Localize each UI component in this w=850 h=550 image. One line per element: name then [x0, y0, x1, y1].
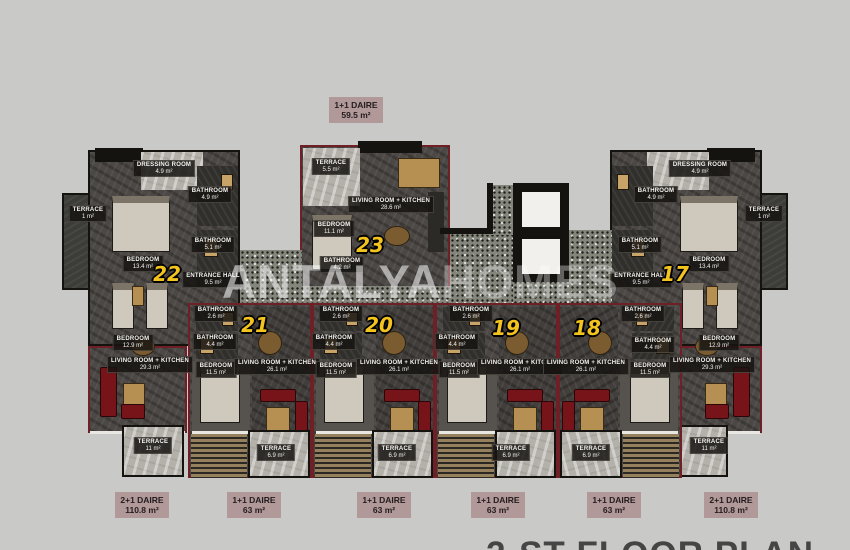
watermark: ANTALYAHOMES — [222, 254, 619, 309]
unit-type-label: 2+1 DAIRE110.8 m² — [115, 492, 169, 518]
room-label: LIVING ROOM + KITCHEN29.3 m² — [669, 356, 755, 373]
wood-balcony — [438, 434, 494, 478]
room-label: TERRACE1 m² — [745, 205, 783, 222]
room-label: BATHROOM4.9 m² — [188, 186, 232, 203]
floor-plan-title: 2-ST FLOOR PLAN — [486, 535, 814, 550]
sofa — [418, 401, 431, 431]
elevator — [519, 189, 563, 230]
coffee-table — [580, 407, 604, 431]
unit-number-badge: 17 — [661, 262, 689, 286]
sofa — [384, 389, 420, 402]
room-label: BATHROOM4.9 m² — [634, 186, 678, 203]
dresser — [706, 286, 718, 306]
room-label: TERRACE1 m² — [69, 205, 107, 222]
room-label: BATHROOM5.1 m² — [618, 236, 662, 253]
room-label: TERRACE5.5 m² — [312, 158, 350, 175]
unit-type-label: 2+1 DAIRE110.8 m² — [704, 492, 758, 518]
wall-segment — [487, 183, 493, 233]
room-label: TERRACE6.9 m² — [492, 444, 530, 461]
room-label: DRESSING ROOM4.9 m² — [669, 160, 731, 177]
coffee-table — [266, 407, 290, 431]
room-label: BEDROOM11.1 m² — [314, 220, 355, 237]
wood-balcony — [623, 434, 679, 478]
bed — [112, 283, 134, 329]
room-label: TERRACE11 m² — [690, 437, 728, 454]
room-label: LIVING ROOM + KITCHEN26.1 m² — [234, 358, 320, 375]
sofa — [705, 404, 729, 419]
room-label: LIVING ROOM + KITCHEN28.6 m² — [348, 196, 434, 213]
unit-type-label-top: 1+1 DAIRE59.5 m² — [329, 97, 383, 123]
unit-number-badge: 22 — [153, 262, 181, 286]
unit-number-badge: 18 — [573, 316, 601, 340]
sofa — [733, 367, 750, 417]
room-label: BATHROOM4.4 m² — [312, 333, 356, 350]
bed — [682, 283, 704, 329]
room-label: BEDROOM12.9 m² — [113, 334, 154, 351]
unit-type-label: 1+1 DAIRE63 m² — [357, 492, 411, 518]
dresser — [132, 286, 144, 306]
toilet — [617, 174, 629, 190]
sofa — [507, 389, 543, 402]
room-label: BEDROOM11.5 m² — [196, 361, 237, 378]
wood-balcony — [191, 434, 247, 478]
room-label: BATHROOM4.4 m² — [435, 333, 479, 350]
bed — [716, 283, 738, 329]
bed — [680, 196, 738, 252]
wall-segment — [440, 228, 493, 234]
sofa — [295, 401, 308, 431]
unit-type-label: 1+1 DAIRE63 m² — [227, 492, 281, 518]
bed — [146, 283, 168, 329]
unit-type-label: 1+1 DAIRE63 m² — [587, 492, 641, 518]
bed — [112, 196, 170, 252]
room-label: BATHROOM5.1 m² — [191, 236, 235, 253]
sofa — [121, 404, 145, 419]
floor-plan-canvas: DRESSING ROOM4.9 m² BATHROOM4.9 m² TERRA… — [0, 0, 850, 550]
sofa — [260, 389, 296, 402]
room-label: BEDROOM11.5 m² — [316, 361, 357, 378]
room-label: TERRACE11 m² — [134, 437, 172, 454]
unit-number-badge: 21 — [241, 313, 269, 337]
sofa — [100, 367, 117, 417]
room-label: BEDROOM12.9 m² — [699, 334, 740, 351]
sofa — [398, 158, 440, 188]
coffee-table — [390, 407, 414, 431]
room-label: BATHROOM2.6 m² — [621, 305, 665, 322]
sofa — [574, 389, 610, 402]
wall-segment — [358, 141, 422, 153]
dining-table — [384, 226, 410, 246]
unit-number-badge: 20 — [365, 313, 393, 337]
sofa — [541, 401, 554, 431]
coffee-table — [513, 407, 537, 431]
unit-number-badge: 19 — [492, 316, 520, 340]
room-label: TERRACE6.9 m² — [257, 444, 295, 461]
room-label: LIVING ROOM + KITCHEN26.1 m² — [356, 358, 442, 375]
room-label: LIVING ROOM + KITCHEN29.3 m² — [107, 356, 193, 373]
room-label: BATHROOM4.4 m² — [631, 336, 675, 353]
wood-balcony — [315, 434, 371, 478]
room-label: BEDROOM13.4 m² — [689, 255, 730, 272]
room-label: BATHROOM4.4 m² — [193, 333, 237, 350]
room-label: TERRACE6.9 m² — [378, 444, 416, 461]
room-label: DRESSING ROOM4.9 m² — [133, 160, 195, 177]
room-label: LIVING ROOM + KITCHEN26.1 m² — [543, 358, 629, 375]
room-label: BEDROOM11.5 m² — [439, 361, 480, 378]
sofa — [562, 401, 575, 431]
room-label: TERRACE6.9 m² — [572, 444, 610, 461]
unit-type-label: 1+1 DAIRE63 m² — [471, 492, 525, 518]
room-label: BEDROOM11.5 m² — [630, 361, 671, 378]
